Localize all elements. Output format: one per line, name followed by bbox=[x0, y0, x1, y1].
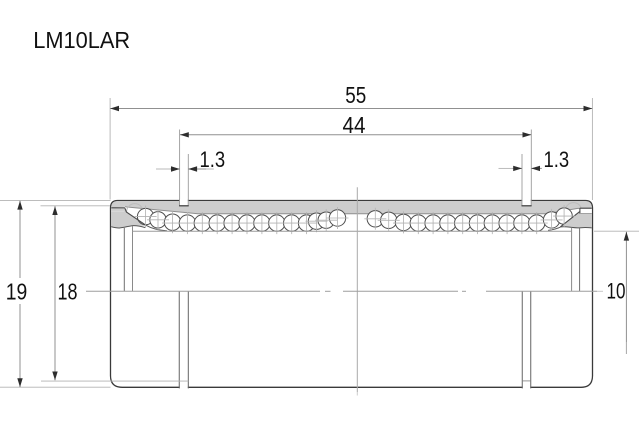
svg-text:44: 44 bbox=[343, 112, 366, 138]
svg-text:LM10LAR: LM10LAR bbox=[33, 27, 130, 53]
svg-text:1.3: 1.3 bbox=[544, 147, 570, 172]
svg-text:1.3: 1.3 bbox=[200, 147, 226, 172]
svg-text:18: 18 bbox=[58, 279, 78, 305]
svg-text:19: 19 bbox=[6, 279, 28, 305]
svg-text:55: 55 bbox=[345, 82, 366, 108]
svg-text:10: 10 bbox=[607, 279, 626, 304]
